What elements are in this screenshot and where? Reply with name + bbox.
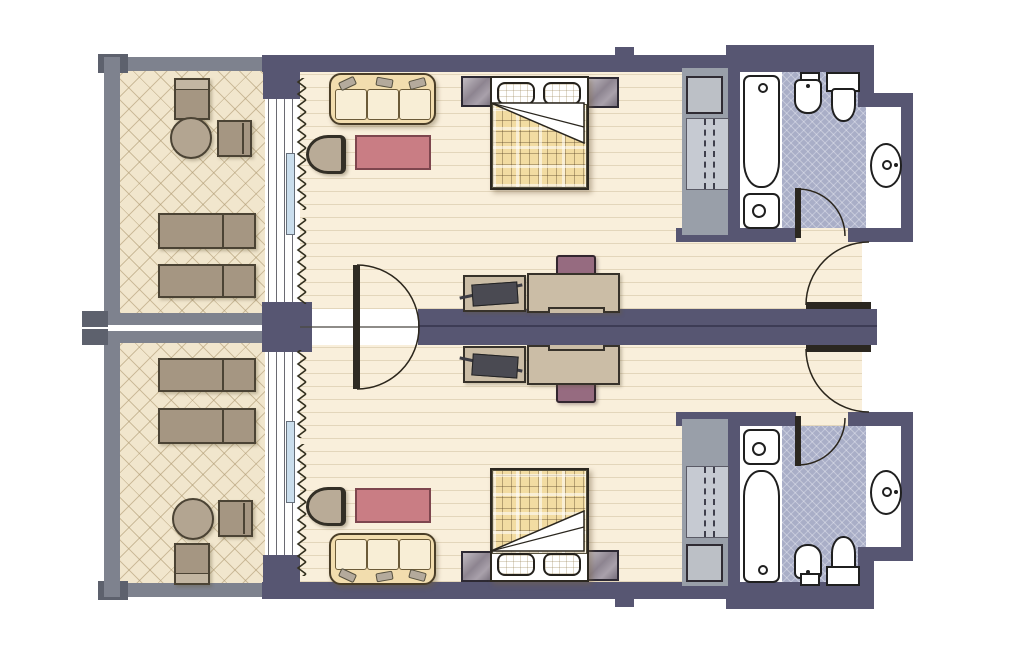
sink-drain — [752, 442, 766, 456]
suitcase — [471, 281, 518, 306]
bathroom-sink — [743, 193, 780, 229]
sun-lounger — [158, 358, 256, 392]
armchair — [306, 135, 346, 174]
balcony-round-table — [172, 498, 214, 540]
sun-lounger — [158, 264, 256, 298]
sofa-cushion — [399, 539, 431, 570]
luggage-rack — [463, 275, 526, 312]
bathroom-door-bottom — [790, 410, 852, 470]
balcony-wall-west-top — [104, 57, 120, 313]
chair-backrest-line — [243, 503, 245, 534]
lounger-split-line — [222, 359, 224, 391]
duvet-fold — [488, 505, 587, 555]
sofa-cushion — [367, 539, 399, 570]
bidet-tap — [806, 84, 810, 88]
bathroom-door-top — [790, 184, 852, 244]
chair-backrest-line — [242, 123, 244, 154]
sun-lounger — [158, 213, 256, 249]
lounger-split-line — [222, 265, 224, 297]
hanging-rail — [713, 467, 715, 537]
balcony-square-chair — [174, 543, 210, 585]
toilet-bowl — [831, 536, 856, 570]
sofa-cushion — [399, 89, 431, 120]
nightstand-right — [586, 77, 619, 108]
tub-drain — [758, 83, 768, 93]
rug — [355, 135, 431, 170]
balcony-divider-cap-lower — [82, 329, 108, 345]
armchair — [306, 487, 346, 526]
bidet — [800, 573, 820, 586]
balcony-side-chair — [218, 500, 253, 537]
balcony-wall-north-top — [104, 57, 265, 71]
suitcase — [471, 353, 518, 378]
bathroom-sink — [743, 429, 780, 465]
tub-drain — [758, 565, 768, 575]
minibar-box — [686, 76, 723, 114]
duvet-fold — [488, 99, 587, 149]
balcony-side-chair — [217, 120, 252, 157]
throw-pillow — [375, 571, 393, 583]
sofa — [329, 533, 436, 585]
basin-tap — [894, 163, 898, 167]
toilet-bowl — [831, 88, 856, 122]
niche-wall-east-top — [901, 93, 913, 240]
entry-door-bottom — [800, 340, 878, 418]
chair-backrest — [175, 573, 209, 584]
wall-north-top — [262, 55, 740, 72]
hanging-rail — [704, 119, 706, 189]
floor-plan — [0, 0, 1024, 654]
central-wall-midline — [418, 325, 877, 327]
wall-east-lower-bottom — [858, 554, 874, 609]
balcony-wall-south-bottom — [104, 583, 265, 597]
wall-east-upper-top — [858, 45, 874, 100]
sofa-cushion — [367, 89, 399, 120]
desk — [527, 345, 620, 385]
wall-tab-top — [615, 47, 634, 56]
bathroom-wall-north-top — [726, 45, 874, 72]
sun-lounger — [158, 408, 256, 444]
entry-door-top — [800, 236, 878, 314]
nightstand-right — [586, 550, 619, 581]
sink-drain — [752, 204, 766, 218]
desk-tray — [548, 345, 605, 351]
bathtub — [743, 470, 780, 583]
hanging-rail — [713, 119, 715, 189]
lounger-split-line — [222, 409, 224, 443]
desk — [527, 273, 620, 313]
washbasin — [870, 470, 902, 515]
rug — [355, 488, 431, 523]
sofa — [329, 73, 436, 125]
closet-hanging-space — [686, 466, 729, 538]
desk-tray — [548, 307, 605, 313]
connecting-door — [296, 260, 424, 394]
wall-south-bottom — [262, 582, 740, 599]
bathroom-wall-south-bottom — [726, 582, 874, 609]
throw-pillow — [375, 77, 393, 89]
hanging-rail — [704, 467, 706, 537]
bidet-bowl — [794, 79, 822, 114]
pillow — [497, 553, 535, 576]
basin-tap — [894, 490, 898, 494]
luggage-rack — [463, 346, 526, 383]
basin-drain — [882, 160, 892, 170]
toilet-tank — [826, 566, 860, 586]
niche-wall-east-bottom — [901, 414, 913, 561]
wall-tab-bottom — [615, 598, 634, 607]
balcony-wall-west-bottom — [104, 341, 120, 597]
throw-pillow — [408, 569, 427, 582]
pillow — [543, 553, 581, 576]
bathtub — [743, 75, 780, 188]
closet-hanging-space — [686, 118, 729, 190]
sofa-cushion — [335, 539, 367, 570]
balcony-square-chair — [174, 78, 210, 120]
balcony-round-table — [170, 117, 212, 159]
sofa-cushion — [335, 89, 367, 120]
balcony-divider-cap-upper — [82, 311, 108, 327]
minibar-box — [686, 544, 723, 582]
washbasin — [870, 143, 902, 188]
throw-pillow — [338, 568, 357, 583]
basin-drain — [882, 487, 892, 497]
lounger-split-line — [222, 214, 224, 248]
chair-backrest — [175, 79, 209, 90]
